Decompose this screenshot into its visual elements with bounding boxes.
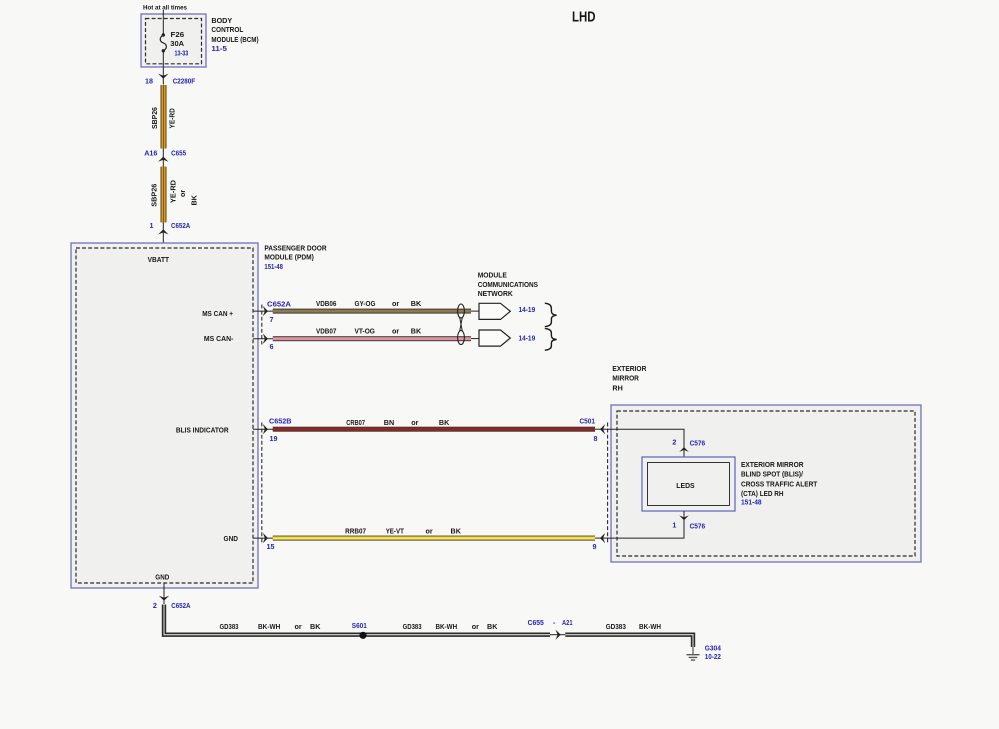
svg-text:BK-WH: BK-WH	[639, 622, 661, 631]
svg-text:19: 19	[270, 434, 278, 443]
svg-text:BK: BK	[439, 418, 450, 427]
svg-text:C652B: C652B	[269, 416, 292, 425]
svg-text:C652A: C652A	[171, 221, 190, 230]
svg-text:BK-WH: BK-WH	[258, 622, 280, 631]
svg-text:C576: C576	[690, 439, 706, 448]
svg-text:EXTERIOR MIRROR: EXTERIOR MIRROR	[741, 460, 804, 469]
svg-text:C652A: C652A	[171, 601, 190, 610]
svg-text:C501: C501	[580, 416, 596, 425]
svg-text:SBP26: SBP26	[150, 184, 159, 207]
svg-text:GD383: GD383	[220, 622, 239, 631]
svg-text:8: 8	[594, 434, 598, 443]
svg-text:BK: BK	[411, 326, 422, 335]
svg-text:C655: C655	[171, 148, 186, 157]
svg-text:7: 7	[270, 315, 274, 324]
svg-text:BK: BK	[451, 527, 462, 536]
svg-text:VDB06: VDB06	[316, 299, 336, 308]
svg-text:F26: F26	[171, 30, 185, 39]
svg-text:151-48: 151-48	[741, 497, 762, 506]
svg-text:NETWORK: NETWORK	[478, 289, 514, 298]
svg-text:YE-RD: YE-RD	[168, 108, 177, 128]
svg-text:10-22: 10-22	[705, 652, 721, 661]
svg-text:YE-VT: YE-VT	[386, 527, 405, 536]
svg-text:1: 1	[672, 521, 676, 530]
svg-text:PASSENGER DOOR: PASSENGER DOOR	[264, 243, 327, 252]
svg-text:CONTROL: CONTROL	[211, 25, 243, 34]
svg-text:BK: BK	[411, 299, 422, 308]
svg-text:or: or	[426, 527, 433, 536]
svg-text:15: 15	[267, 542, 275, 551]
svg-text:MODULE (PDM): MODULE (PDM)	[264, 253, 314, 262]
svg-text:13-33: 13-33	[175, 49, 189, 58]
svg-text:MODULE (BCM): MODULE (BCM)	[211, 35, 259, 44]
svg-text:2: 2	[672, 438, 676, 447]
svg-text:11-5: 11-5	[211, 44, 227, 53]
svg-text:C655: C655	[528, 618, 544, 627]
svg-text:COMMUNICATIONS: COMMUNICATIONS	[478, 280, 538, 289]
svg-text:VT-OG: VT-OG	[355, 326, 376, 335]
svg-text:18: 18	[145, 77, 153, 86]
svg-text:BN: BN	[384, 418, 394, 427]
svg-text:GND: GND	[224, 534, 239, 543]
svg-text:LHD: LHD	[572, 9, 596, 25]
svg-text:A16: A16	[144, 148, 157, 157]
svg-text:C652A: C652A	[267, 299, 291, 308]
svg-text:9: 9	[593, 542, 597, 551]
svg-text:BLIND SPOT (BLIS)/: BLIND SPOT (BLIS)/	[741, 470, 803, 479]
svg-text:BK: BK	[487, 622, 498, 631]
svg-text:LEDS: LEDS	[676, 481, 694, 490]
svg-text:C576: C576	[690, 522, 706, 531]
svg-text:Hot at all times: Hot at all times	[143, 4, 187, 11]
svg-text:GD383: GD383	[606, 622, 626, 631]
svg-text:MIRROR: MIRROR	[612, 374, 639, 383]
svg-text:BK: BK	[310, 622, 321, 631]
svg-text:151-48: 151-48	[264, 262, 283, 271]
svg-text:RRB07: RRB07	[345, 527, 366, 536]
svg-text:VDB07: VDB07	[316, 326, 336, 335]
svg-text:or: or	[392, 299, 399, 308]
svg-text:14-19: 14-19	[519, 334, 536, 343]
svg-text:GD383: GD383	[403, 622, 422, 631]
svg-text:BODY: BODY	[211, 16, 232, 25]
svg-text:MODULE: MODULE	[478, 271, 507, 280]
svg-text:1: 1	[150, 221, 154, 230]
svg-text:GY-OG: GY-OG	[355, 299, 376, 308]
svg-text:or: or	[392, 326, 399, 335]
svg-text:C2280F: C2280F	[173, 77, 196, 86]
svg-text:or: or	[472, 622, 479, 631]
svg-text:GND: GND	[155, 572, 169, 581]
svg-text:YE-RD: YE-RD	[168, 180, 177, 203]
svg-text:or: or	[178, 190, 187, 197]
svg-text:or: or	[411, 418, 418, 427]
svg-text:BK-WH: BK-WH	[436, 622, 458, 631]
svg-text:2: 2	[153, 601, 157, 610]
svg-text:A21: A21	[562, 618, 573, 627]
svg-text:EXTERIOR: EXTERIOR	[612, 364, 647, 373]
svg-text:6: 6	[270, 342, 274, 351]
svg-text:RH: RH	[612, 383, 622, 392]
svg-text:MS CAN-: MS CAN-	[204, 334, 234, 343]
svg-text:S601: S601	[352, 621, 367, 630]
svg-text:VBATT: VBATT	[148, 255, 170, 264]
svg-text:CROSS TRAFFIC ALERT: CROSS TRAFFIC ALERT	[741, 479, 818, 488]
svg-text:14-19: 14-19	[519, 305, 536, 314]
svg-text:30A: 30A	[170, 39, 184, 48]
svg-text:or: or	[295, 622, 302, 631]
svg-text:BLIS INDICATOR: BLIS INDICATOR	[176, 425, 229, 434]
svg-text:MS CAN +: MS CAN +	[202, 309, 233, 318]
svg-text:CRB07: CRB07	[346, 418, 365, 427]
svg-text:BK: BK	[190, 194, 199, 205]
svg-text:SBP26: SBP26	[150, 107, 159, 129]
